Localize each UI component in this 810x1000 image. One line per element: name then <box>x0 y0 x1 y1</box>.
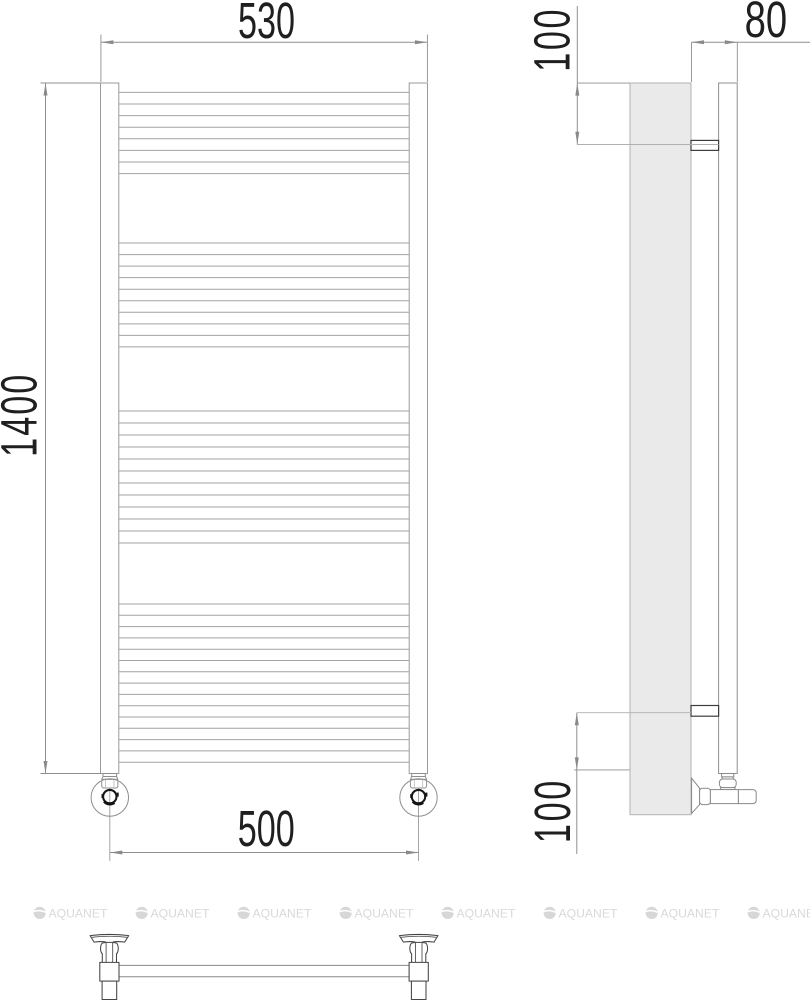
svg-text:AQUANET: AQUANET <box>661 906 720 920</box>
svg-text:AQUANET: AQUANET <box>763 906 810 920</box>
svg-text:AQUANET: AQUANET <box>355 906 414 920</box>
svg-text:100: 100 <box>525 7 581 72</box>
svg-text:AQUANET: AQUANET <box>253 906 312 920</box>
svg-text:AQUANET: AQUANET <box>49 906 108 920</box>
svg-text:100: 100 <box>525 778 581 843</box>
svg-text:AQUANET: AQUANET <box>457 906 516 920</box>
svg-text:530: 530 <box>238 0 295 50</box>
svg-text:80: 80 <box>745 0 788 49</box>
svg-text:1400: 1400 <box>0 373 48 457</box>
svg-text:500: 500 <box>238 801 295 857</box>
svg-text:AQUANET: AQUANET <box>559 906 618 920</box>
svg-text:AQUANET: AQUANET <box>151 906 210 920</box>
